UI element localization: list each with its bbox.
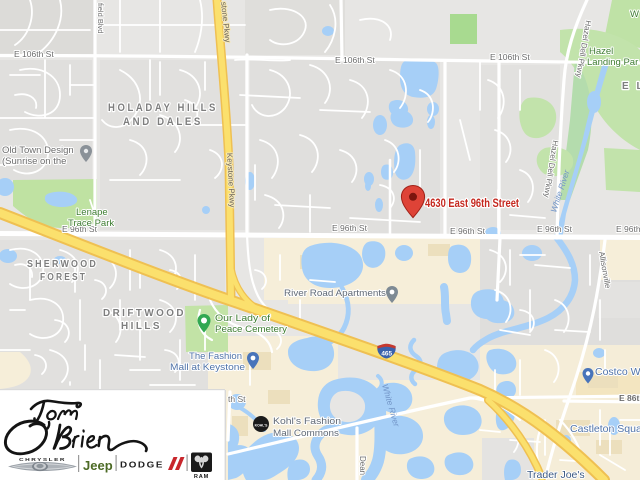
svg-text:HILLS: HILLS [121, 321, 162, 332]
svg-text:E 86th: E 86th [619, 393, 640, 403]
svg-text:E 106th St: E 106th St [335, 55, 375, 65]
svg-text:E 106th St: E 106th St [14, 49, 54, 59]
svg-text:CHRYSLER: CHRYSLER [19, 457, 66, 462]
svg-text:RAM: RAM [194, 474, 209, 480]
svg-text:The Fashion: The Fashion [189, 351, 242, 362]
svg-text:E 96th St: E 96th St [450, 226, 486, 236]
svg-text:th St: th St [228, 394, 246, 404]
svg-text:Peace Cemetery: Peace Cemetery [215, 324, 287, 335]
svg-text:Old Town Design: Old Town Design [2, 145, 74, 156]
svg-text:4630 East 96th Street: 4630 East 96th Street [425, 198, 519, 210]
svg-text:field Blvd: field Blvd [96, 3, 105, 33]
svg-text:AND DALES: AND DALES [123, 116, 203, 128]
svg-text:Jeep: Jeep [83, 458, 113, 473]
svg-text:Mall at Keystone: Mall at Keystone [170, 362, 245, 373]
svg-text:E 96th St: E 96th St [332, 223, 368, 233]
svg-text:Trace Park: Trace Park [68, 218, 114, 229]
svg-text:DODGE: DODGE [120, 460, 164, 470]
svg-text:Mall Commons: Mall Commons [273, 428, 339, 439]
svg-text:Landing Par: Landing Par [587, 57, 638, 68]
svg-text:Trader Joe's: Trader Joe's [527, 469, 585, 480]
svg-text:Our Lady of: Our Lady of [215, 313, 270, 324]
svg-text:Kohl's Fashion: Kohl's Fashion [273, 416, 341, 427]
svg-text:E 96th St: E 96th St [537, 224, 573, 234]
svg-text:E 96th St: E 96th St [616, 224, 640, 234]
svg-text:KOHL'S: KOHL'S [255, 424, 268, 428]
svg-text:(Sunrise on the: (Sunrise on the [2, 156, 66, 167]
svg-text:HOLADAY HILLS: HOLADAY HILLS [108, 102, 218, 114]
svg-text:Dean: Dean [358, 456, 367, 475]
svg-text:FOREST: FOREST [40, 272, 87, 283]
svg-text:Hazel: Hazel [589, 46, 613, 57]
svg-text:River Road Apartments: River Road Apartments [284, 288, 386, 299]
svg-text:Castleton Squa: Castleton Squa [570, 423, 640, 435]
svg-text:W: W [630, 9, 639, 20]
svg-text:465: 465 [381, 350, 392, 357]
svg-text:DRIFTWOOD: DRIFTWOOD [103, 308, 186, 319]
svg-text:E L: E L [622, 81, 640, 92]
svg-text:E 106th St: E 106th St [490, 52, 530, 62]
svg-text:SHERWOOD: SHERWOOD [27, 259, 98, 270]
svg-text:Lenape: Lenape [76, 207, 108, 218]
svg-text:Costco Wh: Costco Wh [595, 366, 640, 378]
